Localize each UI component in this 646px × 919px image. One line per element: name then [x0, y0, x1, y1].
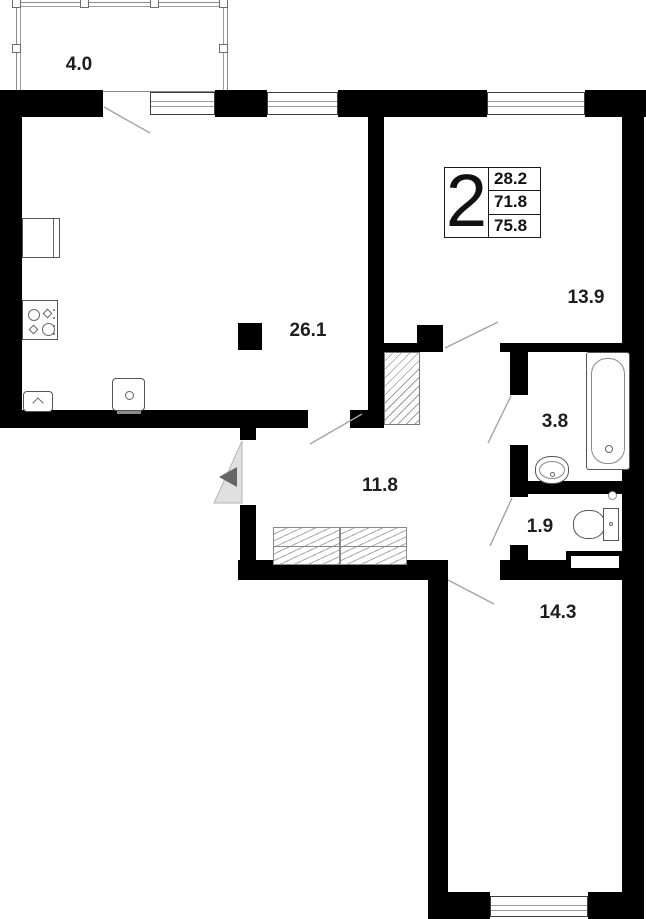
balcony-railing — [16, 2, 228, 92]
window-icon — [267, 92, 338, 115]
wall — [240, 422, 256, 440]
fridge-icon — [22, 218, 60, 258]
ventilation-shaft-icon — [384, 352, 420, 425]
balcony-post — [12, 0, 21, 8]
wall — [368, 117, 384, 428]
washbasin-icon — [535, 456, 569, 484]
door-swing-icon — [445, 322, 498, 348]
floor-plan: 4.0 26.1 13.9 3.8 1.9 11.8 14.3 2 28.2 7… — [0, 0, 646, 919]
tv-icon — [112, 378, 145, 411]
room-label-bathroom: 3.8 — [542, 411, 568, 433]
door-swing-icon — [488, 396, 511, 443]
vent-hole-icon — [608, 491, 617, 500]
wall — [0, 410, 308, 428]
wall — [428, 892, 490, 919]
wall — [338, 90, 487, 117]
area-without-balcony: 71.8 — [489, 191, 540, 214]
wall — [510, 345, 528, 395]
room-label-bedroom-1: 13.9 — [568, 287, 605, 309]
balcony-post — [219, 44, 228, 53]
toilet-icon — [573, 510, 605, 539]
balcony-post — [219, 0, 228, 8]
wardrobe-icon — [340, 527, 407, 565]
room-label-bedroom-2: 14.3 — [540, 602, 577, 624]
wall — [622, 117, 644, 919]
toilet-tank — [603, 508, 619, 541]
bathtub-icon — [586, 352, 630, 470]
vent-duct-icon — [566, 551, 624, 573]
door-swing-icon — [490, 498, 512, 546]
wall — [428, 578, 448, 919]
wall — [585, 90, 646, 117]
wardrobe-icon — [273, 527, 340, 565]
wall — [0, 90, 22, 425]
door-swing-icon — [104, 107, 150, 133]
window-icon — [487, 92, 585, 115]
window-icon — [490, 896, 588, 917]
door-swing-icon — [448, 580, 494, 604]
balcony-post — [150, 0, 159, 8]
room-label-balcony: 4.0 — [66, 54, 92, 76]
room-label-kitchen-living: 26.1 — [290, 320, 327, 342]
window-icon — [150, 92, 215, 115]
wall — [215, 90, 267, 117]
wall — [588, 892, 644, 919]
room-label-hallway: 11.8 — [362, 475, 398, 497]
area-living: 28.2 — [489, 168, 540, 191]
kitchen-sink-icon — [23, 391, 53, 412]
column — [417, 325, 443, 352]
room-count: 2 — [445, 168, 489, 237]
wall — [510, 481, 640, 494]
balcony-post — [80, 0, 89, 8]
balcony-post — [12, 44, 21, 53]
column — [238, 323, 262, 350]
entrance-arrow-icon — [219, 467, 237, 487]
room-label-wc: 1.9 — [527, 516, 553, 538]
wall — [378, 343, 420, 352]
entrance-door-leaf — [214, 441, 242, 503]
area-total: 75.8 — [489, 215, 540, 237]
unit-info-badge: 2 28.2 71.8 75.8 — [444, 167, 541, 238]
tv-stand — [117, 411, 141, 414]
stove-icon — [22, 300, 58, 340]
